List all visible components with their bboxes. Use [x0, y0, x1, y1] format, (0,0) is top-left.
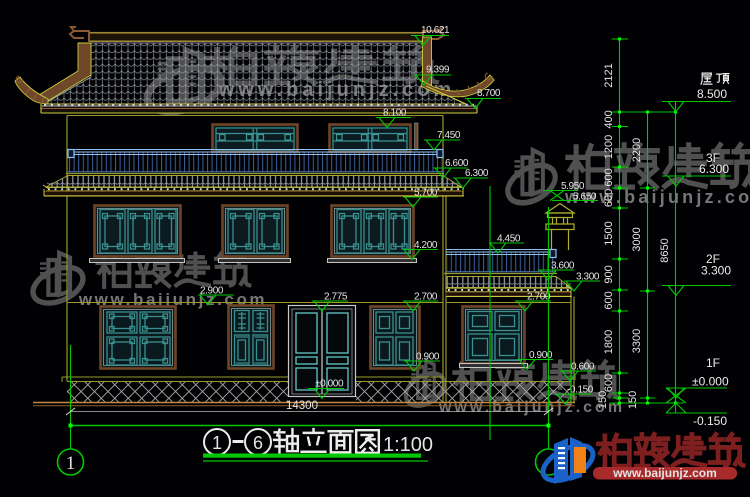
svg-text:2.900: 2.900	[200, 286, 224, 297]
svg-text:3.600: 3.600	[551, 261, 575, 272]
svg-text:www.baijunjz.com: www.baijunjz.com	[612, 466, 717, 480]
svg-text:2.700: 2.700	[414, 292, 438, 303]
svg-text:3000: 3000	[631, 227, 643, 251]
svg-text:600: 600	[603, 168, 615, 186]
svg-text:3300: 3300	[631, 329, 643, 353]
svg-text:5.700: 5.700	[414, 188, 438, 199]
svg-text:5.650: 5.650	[573, 192, 597, 203]
svg-text:6: 6	[253, 433, 263, 453]
svg-text:1: 1	[66, 453, 76, 474]
svg-text:0.600: 0.600	[571, 362, 595, 373]
svg-text:1800: 1800	[603, 330, 615, 354]
svg-text:8650: 8650	[659, 238, 671, 262]
svg-text:4.200: 4.200	[414, 240, 438, 251]
svg-text:1200: 1200	[603, 135, 615, 159]
svg-text:4.450: 4.450	[497, 234, 521, 245]
svg-text:10.621: 10.621	[421, 25, 450, 36]
svg-text:1:100: 1:100	[383, 434, 433, 456]
svg-text:2.775: 2.775	[324, 292, 348, 303]
svg-text:900: 900	[603, 265, 615, 283]
svg-text:1: 1	[212, 433, 222, 453]
svg-text:6.300: 6.300	[699, 162, 729, 176]
svg-text:150: 150	[597, 391, 609, 409]
svg-text:6.300: 6.300	[465, 168, 489, 179]
svg-text:0.900: 0.900	[416, 352, 440, 363]
svg-text:600: 600	[603, 189, 615, 207]
svg-text:0.900: 0.900	[529, 350, 553, 361]
svg-text:1500: 1500	[603, 221, 615, 245]
svg-text:400: 400	[603, 110, 615, 128]
svg-text:±0.000: ±0.000	[692, 375, 729, 389]
svg-text:8.500: 8.500	[697, 87, 727, 101]
svg-text:2121: 2121	[603, 63, 615, 87]
svg-text:3.300: 3.300	[701, 264, 731, 278]
svg-text:8.700: 8.700	[477, 88, 501, 99]
svg-text:2200: 2200	[631, 138, 643, 162]
svg-text:9.399: 9.399	[426, 65, 450, 76]
svg-text:-0.150: -0.150	[693, 414, 727, 428]
svg-text:1F: 1F	[706, 356, 720, 370]
svg-text:±0.000: ±0.000	[315, 379, 344, 390]
svg-text:8.100: 8.100	[383, 108, 407, 119]
svg-text:2.700: 2.700	[527, 292, 551, 303]
svg-text:3.300: 3.300	[576, 272, 600, 283]
svg-text:7.450: 7.450	[437, 130, 461, 141]
svg-text:5.950: 5.950	[561, 181, 585, 192]
svg-text:600: 600	[603, 374, 615, 392]
svg-text:600: 600	[603, 291, 615, 309]
svg-text:14300: 14300	[286, 400, 318, 412]
svg-text:150: 150	[627, 391, 639, 409]
